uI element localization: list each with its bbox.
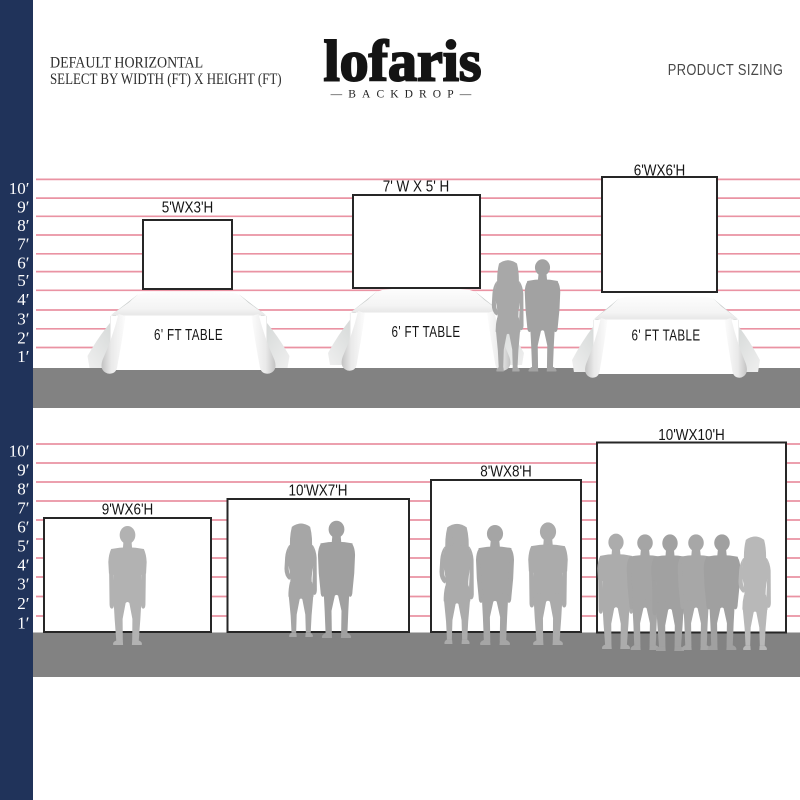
svg-text:6′: 6′: [17, 518, 29, 537]
svg-text:9′: 9′: [17, 461, 29, 480]
svg-text:5'WX3'H: 5'WX3'H: [162, 200, 214, 217]
svg-text:6' FT TABLE: 6' FT TABLE: [632, 327, 701, 344]
svg-text:10'WX7'H: 10'WX7'H: [288, 483, 347, 500]
svg-text:2′: 2′: [17, 328, 29, 347]
svg-text:SELECT BY WIDTH (FT) X HEIGHT: SELECT BY WIDTH (FT) X HEIGHT (FT): [50, 71, 282, 88]
svg-text:4′: 4′: [17, 556, 29, 575]
svg-text:DEFAULT HORIZONTAL: DEFAULT HORIZONTAL: [50, 55, 203, 72]
svg-text:8′: 8′: [17, 480, 29, 499]
svg-text:7′: 7′: [17, 235, 29, 254]
svg-text:8′: 8′: [17, 216, 29, 235]
svg-text:4′: 4′: [17, 290, 29, 309]
svg-text:6'WX6'H: 6'WX6'H: [634, 163, 686, 180]
svg-text:—BACKDROP—: —BACKDROP—: [330, 89, 478, 101]
svg-text:10'WX10'H: 10'WX10'H: [658, 427, 725, 444]
svg-text:7′: 7′: [17, 499, 29, 518]
svg-text:2′: 2′: [17, 594, 29, 613]
svg-text:7' W X 5' H: 7' W X 5' H: [383, 179, 450, 196]
svg-text:6' FT TABLE: 6' FT TABLE: [154, 326, 223, 343]
svg-text:5′: 5′: [17, 271, 29, 290]
svg-text:6′: 6′: [17, 253, 29, 272]
svg-text:6' FT TABLE: 6' FT TABLE: [392, 323, 461, 340]
svg-text:1′: 1′: [17, 347, 29, 366]
svg-text:10′: 10′: [9, 442, 30, 461]
svg-text:3′: 3′: [17, 575, 29, 594]
svg-text:10′: 10′: [9, 179, 30, 198]
svg-text:1′: 1′: [17, 614, 29, 633]
svg-text:5′: 5′: [17, 537, 29, 556]
svg-text:9′: 9′: [17, 198, 29, 217]
svg-text:9'WX6'H: 9'WX6'H: [102, 502, 154, 519]
svg-text:8'WX8'H: 8'WX8'H: [480, 464, 532, 481]
svg-text:lofaris: lofaris: [324, 29, 482, 94]
svg-text:3′: 3′: [17, 310, 29, 329]
svg-text:PRODUCT SIZING: PRODUCT SIZING: [668, 62, 784, 79]
